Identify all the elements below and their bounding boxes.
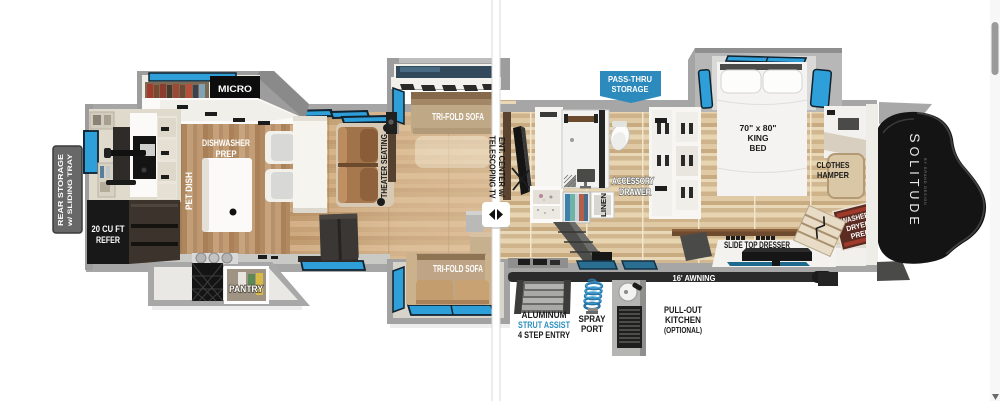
svg-text:w/ SLIDING TRAY: w/ SLIDING TRAY bbox=[67, 153, 74, 227]
svg-text:PASS-THRU: PASS-THRU bbox=[608, 74, 652, 84]
svg-text:KITCHEN: KITCHEN bbox=[665, 315, 701, 326]
svg-text:PET DISH: PET DISH bbox=[184, 172, 194, 210]
svg-text:BY GRAND DESIGN: BY GRAND DESIGN bbox=[923, 158, 927, 206]
svg-text:MICRO: MICRO bbox=[218, 84, 252, 95]
svg-text:DISHWASHER: DISHWASHER bbox=[202, 138, 250, 149]
svg-text:TELESCOPING TV: TELESCOPING TV bbox=[488, 136, 497, 200]
svg-text:ACCESSORY: ACCESSORY bbox=[612, 176, 654, 187]
svg-text:BED: BED bbox=[750, 143, 767, 153]
svg-text:REAR STORAGE: REAR STORAGE bbox=[56, 154, 65, 226]
svg-text:20 CU FT: 20 CU FT bbox=[92, 224, 125, 235]
svg-text:(OPTIONAL): (OPTIONAL) bbox=[664, 326, 702, 335]
svg-text:4 STEP ENTRY: 4 STEP ENTRY bbox=[518, 330, 571, 341]
svg-text:PANTRY: PANTRY bbox=[229, 284, 264, 295]
svg-text:SLIDE TOP DRESSER: SLIDE TOP DRESSER bbox=[724, 240, 790, 251]
svg-text:REFER: REFER bbox=[96, 235, 120, 246]
svg-text:STORAGE: STORAGE bbox=[612, 84, 649, 94]
svg-text:LINEN: LINEN bbox=[599, 193, 608, 217]
svg-text:KING: KING bbox=[748, 133, 769, 143]
svg-text:CLOTHES: CLOTHES bbox=[817, 160, 850, 170]
svg-text:THEATER SEATING: THEATER SEATING bbox=[380, 134, 389, 198]
svg-text:DRAWER: DRAWER bbox=[619, 187, 651, 198]
svg-text:16' AWNING: 16' AWNING bbox=[673, 273, 716, 283]
svg-text:HAMPER: HAMPER bbox=[817, 170, 849, 180]
svg-text:70" x 80": 70" x 80" bbox=[740, 123, 777, 133]
svg-text:TRI-FOLD SOFA: TRI-FOLD SOFA bbox=[433, 264, 483, 275]
svg-text:PORT: PORT bbox=[581, 324, 603, 335]
svg-text:SOLITUDE: SOLITUDE bbox=[907, 133, 923, 229]
svg-text:TRI-FOLD SOFA: TRI-FOLD SOFA bbox=[432, 112, 484, 123]
svg-text:ENT. CENTER w/: ENT. CENTER w/ bbox=[497, 137, 506, 198]
